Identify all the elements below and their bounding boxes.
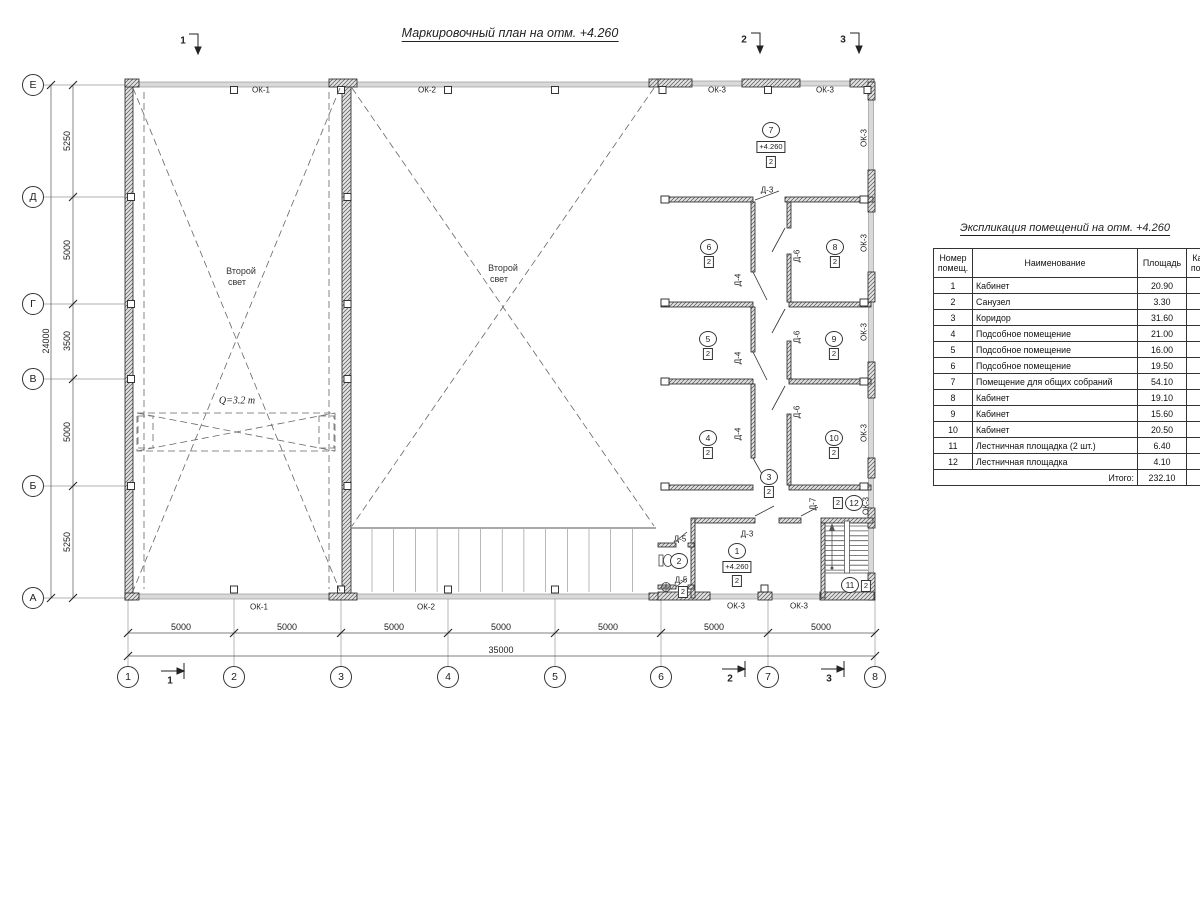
plan-title: Маркировочный план на отм. +4.260 — [402, 26, 619, 42]
door-label-d3-top: Д-3 — [761, 186, 774, 195]
second-light-label-1b: свет — [228, 277, 246, 287]
door-label-d6-1: Д-6 — [793, 250, 802, 263]
door-label-d5-1: Д-5 — [674, 535, 687, 544]
category-mark-room2: 2 — [678, 586, 688, 598]
elevation-mark-room1: +4.260 — [722, 561, 751, 573]
cell-num: 3 — [934, 310, 973, 326]
cell-name: Кабинет — [973, 406, 1138, 422]
category-mark-room1: 2 — [732, 575, 742, 587]
category-mark-room4: 2 — [703, 447, 713, 459]
cell-name: Подсобное помещение — [973, 342, 1138, 358]
cell-cat — [1187, 358, 1200, 374]
category-mark-room12: 2 — [833, 497, 843, 509]
window-label-ok2-bottom: ОК-2 — [417, 603, 435, 612]
dim-row-5: 5250 — [62, 532, 72, 552]
cell-cat — [1187, 326, 1200, 342]
windows — [132, 81, 874, 599]
cell-num: 1 — [934, 278, 973, 294]
table-row: 4Подсобное помещение21.00 — [934, 326, 1200, 342]
window-label-ok3-top-1: ОК-3 — [708, 86, 726, 95]
section-mark-2-top: 2 — [741, 35, 747, 46]
second-light-label-1a: Второй — [226, 266, 256, 276]
window-label-ok3-right-3: ОК-3 — [860, 323, 869, 341]
schedule-col-number: Номер помещ. — [934, 249, 973, 278]
door-label-d6-3: Д-6 — [793, 406, 802, 419]
cell-name: Кабинет — [973, 422, 1138, 438]
dashed-lines — [133, 88, 654, 591]
window-label-ok3-top-2: ОК-3 — [816, 86, 834, 95]
cell-num: 10 — [934, 422, 973, 438]
axis-row-b: Б — [22, 475, 44, 497]
category-mark-room8: 2 — [830, 256, 840, 268]
section-mark-3-bottom: 3 — [826, 674, 832, 685]
section-mark-1-bottom: 1 — [167, 676, 173, 687]
dim-col-7: 5000 — [811, 622, 831, 632]
dim-col-4: 5000 — [491, 622, 511, 632]
cell-area: 19.50 — [1138, 358, 1187, 374]
cell-num: 11 — [934, 438, 973, 454]
platform — [351, 528, 656, 592]
sink-icon — [662, 583, 671, 592]
dim-col-2: 5000 — [277, 622, 297, 632]
category-mark-room10: 2 — [829, 447, 839, 459]
room-mark-10: 10 — [825, 430, 843, 446]
room-schedule-table: Номер помещ. Наименование Площадь Кат. п… — [933, 248, 1200, 486]
cell-name: Лестничная площадка (2 шт.) — [973, 438, 1138, 454]
table-row: 6Подсобное помещение19.50 — [934, 358, 1200, 374]
axis-col-7: 7 — [757, 666, 779, 688]
cell-area: 19.10 — [1138, 390, 1187, 406]
cell-num: 6 — [934, 358, 973, 374]
cell-cat — [1187, 454, 1200, 470]
stairs — [825, 521, 868, 573]
walls — [125, 79, 875, 600]
axis-row-e: Е — [22, 74, 44, 96]
table-row: 7Помещение для общих собраний54.10 — [934, 374, 1200, 390]
table-row: 3Коридор31.60 — [934, 310, 1200, 326]
cell-area: 54.10 — [1138, 374, 1187, 390]
axis-col-3: 3 — [330, 666, 352, 688]
window-label-ok3-bottom-1: ОК-3 — [727, 602, 745, 611]
room-mark-3: 3 — [760, 469, 778, 485]
cell-num: 8 — [934, 390, 973, 406]
schedule-col-name: Наименование — [973, 249, 1138, 278]
window-label-ok3-right-2: ОК-3 — [860, 234, 869, 252]
cell-area: 20.50 — [1138, 422, 1187, 438]
table-row: 12Лестничная площадка4.10 — [934, 454, 1200, 470]
axis-col-5: 5 — [544, 666, 566, 688]
table-row: 1Кабинет20.90 — [934, 278, 1200, 294]
room-mark-4: 4 — [699, 430, 717, 446]
cell-cat — [1187, 406, 1200, 422]
cell-area: 6.40 — [1138, 438, 1187, 454]
cell-num: 2 — [934, 294, 973, 310]
cell-num: 9 — [934, 406, 973, 422]
axis-row-d: Д — [22, 186, 44, 208]
cell-num: 4 — [934, 326, 973, 342]
schedule-title: Экспликация помещений на отм. +4.260 — [960, 222, 1170, 236]
second-light-label-2a: Второй — [488, 263, 518, 273]
room-mark-9: 9 — [825, 331, 843, 347]
category-mark-room11: 2 — [861, 580, 871, 592]
cell-name: Кабинет — [973, 278, 1138, 294]
dim-col-3: 5000 — [384, 622, 404, 632]
cell-cat — [1187, 310, 1200, 326]
dimension-ticks — [47, 81, 879, 660]
cell-num: 12 — [934, 454, 973, 470]
axis-row-g: Г — [22, 293, 44, 315]
dim-col-total: 35000 — [488, 645, 513, 655]
cell-area: 3.30 — [1138, 294, 1187, 310]
door-label-d7: Д-7 — [809, 498, 818, 511]
dim-col-1: 5000 — [171, 622, 191, 632]
second-light-label-2b: свет — [490, 274, 508, 284]
schedule-total-row: Итого: 232.10 — [934, 470, 1200, 486]
cell-area: 20.90 — [1138, 278, 1187, 294]
cell-cat — [1187, 438, 1200, 454]
door-label-d3-bottom: Д-3 — [741, 530, 754, 539]
window-label-ok3-right-5: ОК-3 — [862, 497, 871, 515]
window-label-ok1-top: ОК-1 — [252, 86, 270, 95]
window-label-ok3-bottom-2: ОК-3 — [790, 602, 808, 611]
axis-row-a: А — [22, 587, 44, 609]
cell-name: Санузел — [973, 294, 1138, 310]
cell-name: Помещение для общих собраний — [973, 374, 1138, 390]
category-mark-room5: 2 — [703, 348, 713, 360]
section-mark-2-bottom: 2 — [727, 674, 733, 685]
axis-row-v: В — [22, 368, 44, 390]
cell-area: 31.60 — [1138, 310, 1187, 326]
cell-cat — [1187, 374, 1200, 390]
category-mark-room7: 2 — [766, 156, 776, 168]
cell-area: 21.00 — [1138, 326, 1187, 342]
axis-col-6: 6 — [650, 666, 672, 688]
door-label-d5-2: Д-5 — [675, 576, 688, 585]
table-row: 5Подсобное помещение16.00 — [934, 342, 1200, 358]
cell-name: Коридор — [973, 310, 1138, 326]
window-label-ok3-right-4: ОК-3 — [860, 424, 869, 442]
door-label-d4-3: Д-4 — [734, 428, 743, 441]
cell-cat — [1187, 278, 1200, 294]
schedule-col-cat: Кат. пом. — [1187, 249, 1200, 278]
cell-cat — [1187, 390, 1200, 406]
table-row: 2Санузел3.30 — [934, 294, 1200, 310]
dim-row-4: 5000 — [62, 422, 72, 442]
door-label-d4-2: Д-4 — [734, 352, 743, 365]
axis-col-1: 1 — [117, 666, 139, 688]
dim-row-2: 5000 — [62, 240, 72, 260]
axis-col-2: 2 — [223, 666, 245, 688]
schedule-header-row: Номер помещ. Наименование Площадь Кат. п… — [934, 249, 1200, 278]
elevation-mark-room7: +4.260 — [756, 141, 785, 153]
cell-name: Подсобное помещение — [973, 358, 1138, 374]
room-mark-2: 2 — [670, 553, 688, 569]
dim-row-3: 3500 — [62, 331, 72, 351]
table-row: 9Кабинет15.60 — [934, 406, 1200, 422]
window-label-ok1-bottom: ОК-1 — [250, 603, 268, 612]
dim-col-5: 5000 — [598, 622, 618, 632]
table-row: 8Кабинет19.10 — [934, 390, 1200, 406]
cell-name: Лестничная площадка — [973, 454, 1138, 470]
table-row: 11Лестничная площадка (2 шт.)6.40 — [934, 438, 1200, 454]
dim-col-6: 5000 — [704, 622, 724, 632]
dim-row-1: 5250 — [62, 131, 72, 151]
total-label: Итого: — [934, 470, 1138, 486]
cell-cat — [1187, 342, 1200, 358]
floor-plan-sheet: { "plan": { "title": "Маркировочный план… — [0, 0, 1200, 900]
cell-name: Кабинет — [973, 390, 1138, 406]
cell-num: 5 — [934, 342, 973, 358]
schedule-col-area: Площадь — [1138, 249, 1187, 278]
cell-area: 15.60 — [1138, 406, 1187, 422]
cell-num: 7 — [934, 374, 973, 390]
category-mark-room6: 2 — [704, 256, 714, 268]
section-arrows — [161, 33, 862, 679]
dim-row-total: 24000 — [41, 328, 51, 353]
columns — [128, 87, 872, 594]
category-mark-room9: 2 — [829, 348, 839, 360]
table-row: 10Кабинет20.50 — [934, 422, 1200, 438]
room-mark-11: 11 — [841, 577, 859, 593]
cell-name: Подсобное помещение — [973, 326, 1138, 342]
room-mark-6: 6 — [700, 239, 718, 255]
door-label-d6-2: Д-6 — [793, 331, 802, 344]
room-mark-8: 8 — [826, 239, 844, 255]
window-label-ok2-top: ОК-2 — [418, 86, 436, 95]
section-mark-1-top: 1 — [180, 36, 186, 47]
grid-extension-lines — [44, 85, 875, 666]
cell-cat — [1187, 422, 1200, 438]
cell-area: 16.00 — [1138, 342, 1187, 358]
category-mark-room3: 2 — [764, 486, 774, 498]
section-mark-3-top: 3 — [840, 35, 846, 46]
door-label-d4-1: Д-4 — [734, 274, 743, 287]
axis-col-8: 8 — [864, 666, 886, 688]
window-label-ok3-right-1: ОК-3 — [860, 129, 869, 147]
crane-capacity-label: Q=3.2 т — [219, 396, 255, 407]
total-cat-cell — [1187, 470, 1200, 486]
axis-col-4: 4 — [437, 666, 459, 688]
room-mark-5: 5 — [699, 331, 717, 347]
room-mark-1: 1 — [728, 543, 746, 559]
room-mark-7: 7 — [762, 122, 780, 138]
cell-area: 4.10 — [1138, 454, 1187, 470]
total-value: 232.10 — [1138, 470, 1187, 486]
cell-cat — [1187, 294, 1200, 310]
room-mark-12: 12 — [845, 495, 863, 511]
